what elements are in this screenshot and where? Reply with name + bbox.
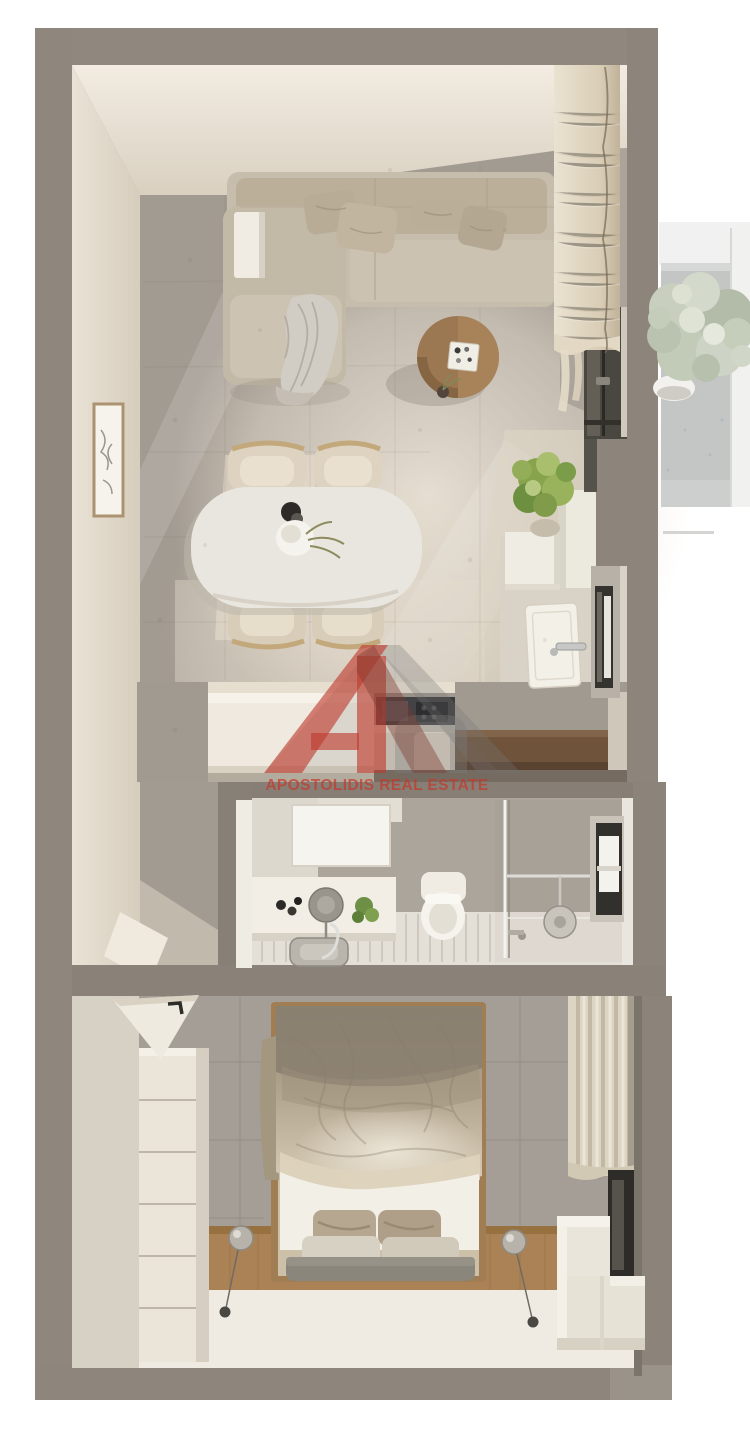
svg-text:APOSTOLIDIS REAL ESTATE: APOSTOLIDIS REAL ESTATE — [265, 777, 488, 794]
